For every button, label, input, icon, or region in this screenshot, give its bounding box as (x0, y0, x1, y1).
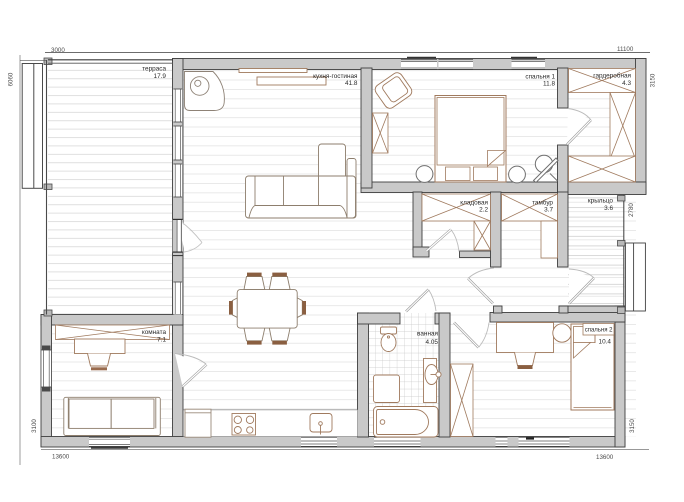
svg-text:13600: 13600 (596, 454, 614, 461)
svg-text:17.9: 17.9 (154, 73, 167, 80)
svg-text:6060: 6060 (8, 72, 15, 86)
svg-text:крыльцо: крыльцо (588, 198, 614, 205)
svg-text:3000: 3000 (51, 47, 65, 54)
svg-text:2.2: 2.2 (479, 207, 488, 214)
svg-text:спальня 2: спальня 2 (585, 328, 613, 334)
svg-text:4.3: 4.3 (622, 80, 631, 87)
svg-text:2780: 2780 (628, 203, 635, 217)
svg-text:11100: 11100 (617, 46, 634, 53)
svg-text:спальня 1: спальня 1 (525, 73, 555, 80)
svg-text:11.8: 11.8 (543, 81, 555, 88)
svg-text:7.1: 7.1 (157, 337, 166, 344)
svg-text:ванная: ванная (417, 331, 438, 338)
svg-text:тамбур: тамбур (532, 199, 553, 207)
svg-text:кухня-гостиная: кухня-гостиная (313, 73, 358, 80)
svg-text:10.4: 10.4 (599, 339, 612, 346)
svg-text:терраса: терраса (142, 66, 166, 73)
svg-text:3150: 3150 (650, 73, 657, 87)
svg-text:3100: 3100 (31, 419, 38, 433)
svg-text:3.7: 3.7 (544, 207, 553, 214)
svg-text:4.05: 4.05 (426, 339, 439, 346)
svg-text:комната: комната (142, 329, 167, 336)
svg-text:кладовая: кладовая (460, 200, 488, 207)
svg-text:3.6: 3.6 (604, 205, 613, 212)
svg-text:13600: 13600 (52, 454, 70, 461)
svg-text:41.8: 41.8 (345, 80, 358, 87)
svg-text:гардеробная: гардеробная (593, 72, 631, 80)
svg-text:3150: 3150 (629, 419, 636, 433)
